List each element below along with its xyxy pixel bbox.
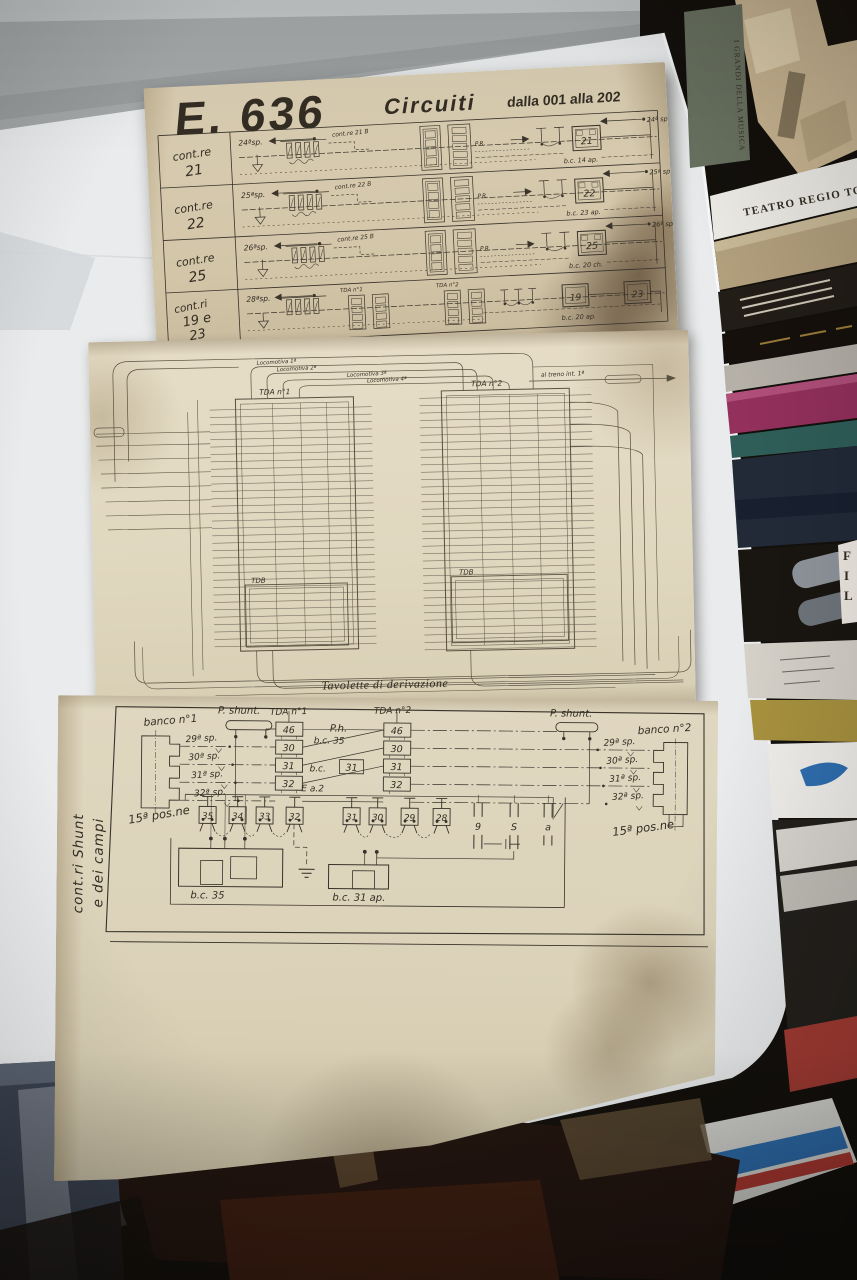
svg-text:21: 21: [184, 162, 204, 181]
banco1-symbol: [141, 736, 180, 808]
svg-text:P.R.: P.R.: [480, 245, 491, 253]
svg-text:TDB: TDB: [251, 577, 266, 585]
photo-scene: I GRANDI DELLA MUSICA TEATRO REGIO TO: [0, 0, 857, 1280]
svg-text:26ª sp.: 26ª sp.: [652, 220, 675, 229]
svg-text:P.R.: P.R.: [475, 140, 486, 148]
svg-text:cont.re 22 B: cont.re 22 B: [334, 181, 371, 192]
tda-strip-pair-2: [444, 289, 486, 325]
svg-text:25ª sp.: 25ª sp.: [649, 167, 672, 176]
svg-text:33: 33: [259, 812, 271, 822]
svg-text:31: 31: [346, 813, 358, 823]
bc31-wire-label: b.c.: [309, 764, 325, 774]
svg-text:26ªsp.: 26ªsp.: [243, 242, 268, 252]
svg-text:46: 46: [391, 726, 403, 737]
sp-labels-right: 29ª sp. 30ª sp. 31ª sp. 32ª sp.: [603, 737, 645, 804]
numbered-box: 22: [575, 178, 604, 203]
svg-text:S: S: [511, 822, 517, 833]
tda1-pins: [209, 400, 376, 651]
svg-text:Locomotiva 2ª: Locomotiva 2ª: [277, 364, 317, 373]
circuit-row-2: 25ªsp. cont.re 22 B: [241, 165, 675, 234]
sheet-top: E. 636 Circuiti dalla 001 alla 202 cont.…: [144, 62, 679, 358]
svg-text:22: 22: [186, 215, 206, 234]
arc-labels: Locomotiva 1ª Locomotiva 2ª Locomotiva 3…: [256, 352, 584, 387]
circuit-row-4: 28ªsp. TDA n°1 TDA n°2: [246, 272, 666, 338]
doc-title: E. 636: [173, 85, 328, 145]
svg-text:31ª sp.: 31ª sp.: [609, 773, 641, 785]
ground-symbol: [252, 154, 263, 171]
svg-text:b.c. 14 ap.: b.c. 14 ap.: [564, 155, 599, 165]
svg-text:23: 23: [632, 290, 644, 301]
tda2-label: TDA n°2: [471, 379, 503, 389]
contact-pair: [539, 180, 568, 199]
ground-symbol: [258, 313, 269, 328]
sheet-middle: TDA n°1 TDA n°2 TDB TDB: [88, 330, 696, 714]
svg-text:25: 25: [586, 241, 599, 253]
svg-text:9: 9: [475, 822, 481, 833]
doc-subtitle: Circuiti: [382, 90, 478, 120]
coil-group: [280, 296, 327, 315]
svg-text:32ª sp.: 32ª sp.: [194, 787, 226, 799]
svg-text:29ª sp.: 29ª sp.: [603, 737, 635, 749]
svg-text:a: a: [545, 822, 551, 833]
coil-group: [286, 244, 333, 269]
svg-text:30ª sp.: 30ª sp.: [188, 751, 220, 763]
bc35-wire-label: b.c. 35: [314, 736, 345, 746]
svg-text:30: 30: [283, 743, 295, 754]
ground-symbol: [257, 259, 268, 276]
svg-text:I: I: [844, 568, 849, 583]
svg-text:30: 30: [372, 813, 384, 823]
banco2-label: banco n°2: [637, 722, 692, 737]
pos-left-label: 15ª pos.ne: [127, 803, 191, 827]
svg-text:31: 31: [282, 761, 294, 772]
coil-group: [283, 192, 330, 217]
svg-text:cont.re 25 B: cont.re 25 B: [337, 233, 374, 244]
switch-trio: 9 S a: [474, 803, 552, 850]
svg-text:31: 31: [345, 763, 357, 774]
svg-text:29: 29: [404, 814, 416, 824]
svg-text:30ª sp.: 30ª sp.: [606, 755, 638, 767]
numbered-box-b: 23: [624, 281, 651, 304]
svg-text:b.c. 23 ap.: b.c. 23 ap.: [566, 208, 601, 218]
coil-group: [280, 139, 327, 164]
svg-text:TDA n°2: TDA n°2: [436, 282, 460, 289]
svg-text:b.c. 20 ap.: b.c. 20 ap.: [561, 312, 596, 322]
numbered-box: 21: [572, 125, 601, 150]
svg-text:P.R.: P.R.: [477, 193, 488, 201]
svg-text:28: 28: [436, 814, 448, 824]
row-labels: cont.re 21 cont.re 22 cont.re 25 cont.ri…: [165, 145, 221, 345]
svg-text:cont.ri Shunt: cont.ri Shunt: [70, 813, 87, 913]
bc35-component: [178, 837, 282, 887]
svg-text:TDB: TDB: [459, 568, 474, 576]
pshunt-right-symbol: [556, 722, 598, 731]
sp-labels-left: 29ª sp. 30ª sp. 31ª sp. 32ª sp.: [185, 733, 227, 800]
tda-strip-pair-1: [348, 294, 390, 330]
svg-text:L: L: [844, 588, 853, 603]
svg-text:22: 22: [583, 188, 596, 200]
tda1-label: TDA n°1: [270, 707, 308, 718]
tda2-label: TDA n°2: [374, 706, 412, 717]
ground-symbol: [255, 207, 266, 224]
tda1-label: TDA n°1: [259, 387, 290, 397]
contact-boxes-right: 31 30 29 28: [343, 798, 450, 838]
svg-text:32: 32: [282, 779, 294, 790]
ea2-label: E a.2: [301, 784, 324, 794]
svg-text:TDA n°1: TDA n°1: [340, 287, 363, 294]
bc31-caption: b.c. 31 ap.: [332, 893, 385, 904]
pshunt-left-label: P. shunt.: [218, 706, 260, 717]
svg-text:46: 46: [283, 725, 295, 736]
yellow-book: [750, 700, 857, 742]
svg-text:F: F: [843, 548, 851, 563]
svg-text:24ªsp.: 24ªsp.: [238, 137, 263, 147]
circuit-row-3: 26ªsp. cont.re 25 B: [243, 218, 677, 287]
svg-text:30: 30: [391, 744, 403, 755]
svg-text:e dei campi: e dei campi: [90, 818, 107, 908]
ground-symbol: [299, 869, 315, 877]
bc31-boxed: 31: [339, 760, 363, 774]
svg-text:32ª sp.: 32ª sp.: [612, 791, 644, 803]
middle-caption: Tavolette di derivazione: [321, 676, 448, 693]
contact-pair: [541, 232, 570, 251]
contact-pair: [536, 127, 565, 146]
svg-text:31: 31: [390, 762, 402, 773]
numbered-box-a: 19: [562, 284, 589, 307]
svg-text:34: 34: [232, 812, 244, 822]
svg-text:24ª sp.: 24ª sp.: [647, 115, 670, 124]
svg-text:35: 35: [202, 812, 214, 822]
svg-text:cont.re: cont.re: [175, 251, 216, 270]
banco2-symbol: [653, 742, 688, 814]
svg-text:28ªsp.: 28ªsp.: [246, 294, 271, 304]
ph-label: P.h.: [330, 724, 347, 735]
pshunt-right-label: P. shunt.: [550, 708, 592, 719]
svg-text:cont.re 21 B: cont.re 21 B: [332, 128, 369, 139]
svg-text:cont.re: cont.re: [173, 198, 214, 217]
svg-text:21: 21: [580, 136, 593, 148]
doc-range: dalla 001 alla 202: [507, 88, 621, 110]
bc35-caption: b.c. 35: [190, 890, 224, 901]
svg-text:32: 32: [289, 813, 301, 823]
contact-boxes-left: 35 34 33 32: [199, 796, 303, 836]
svg-text:19: 19: [570, 293, 582, 304]
side-caption: cont.ri Shunt e dei campi: [70, 813, 107, 913]
white-spine-small: [744, 640, 857, 700]
numbered-box: 25: [577, 230, 606, 255]
svg-text:25: 25: [188, 268, 208, 287]
pshunt-left-symbol: [226, 721, 272, 730]
pos-right-label: 15ª pos.ne: [611, 817, 674, 839]
svg-text:25ªsp.: 25ªsp.: [241, 190, 266, 200]
svg-text:cont.re: cont.re: [172, 145, 213, 164]
svg-text:al treno int. 1ª: al treno int. 1ª: [541, 370, 585, 379]
svg-text:32: 32: [390, 780, 402, 791]
contact-group: [500, 288, 537, 306]
banco1-label: banco n°1: [143, 713, 198, 729]
svg-text:b.c. 20 ch.: b.c. 20 ch.: [569, 260, 603, 270]
bc31-component: [328, 850, 388, 889]
svg-text:29ª sp.: 29ª sp.: [185, 733, 217, 745]
cable-lug: [94, 428, 124, 438]
svg-text:31ª sp.: 31ª sp.: [191, 769, 223, 781]
